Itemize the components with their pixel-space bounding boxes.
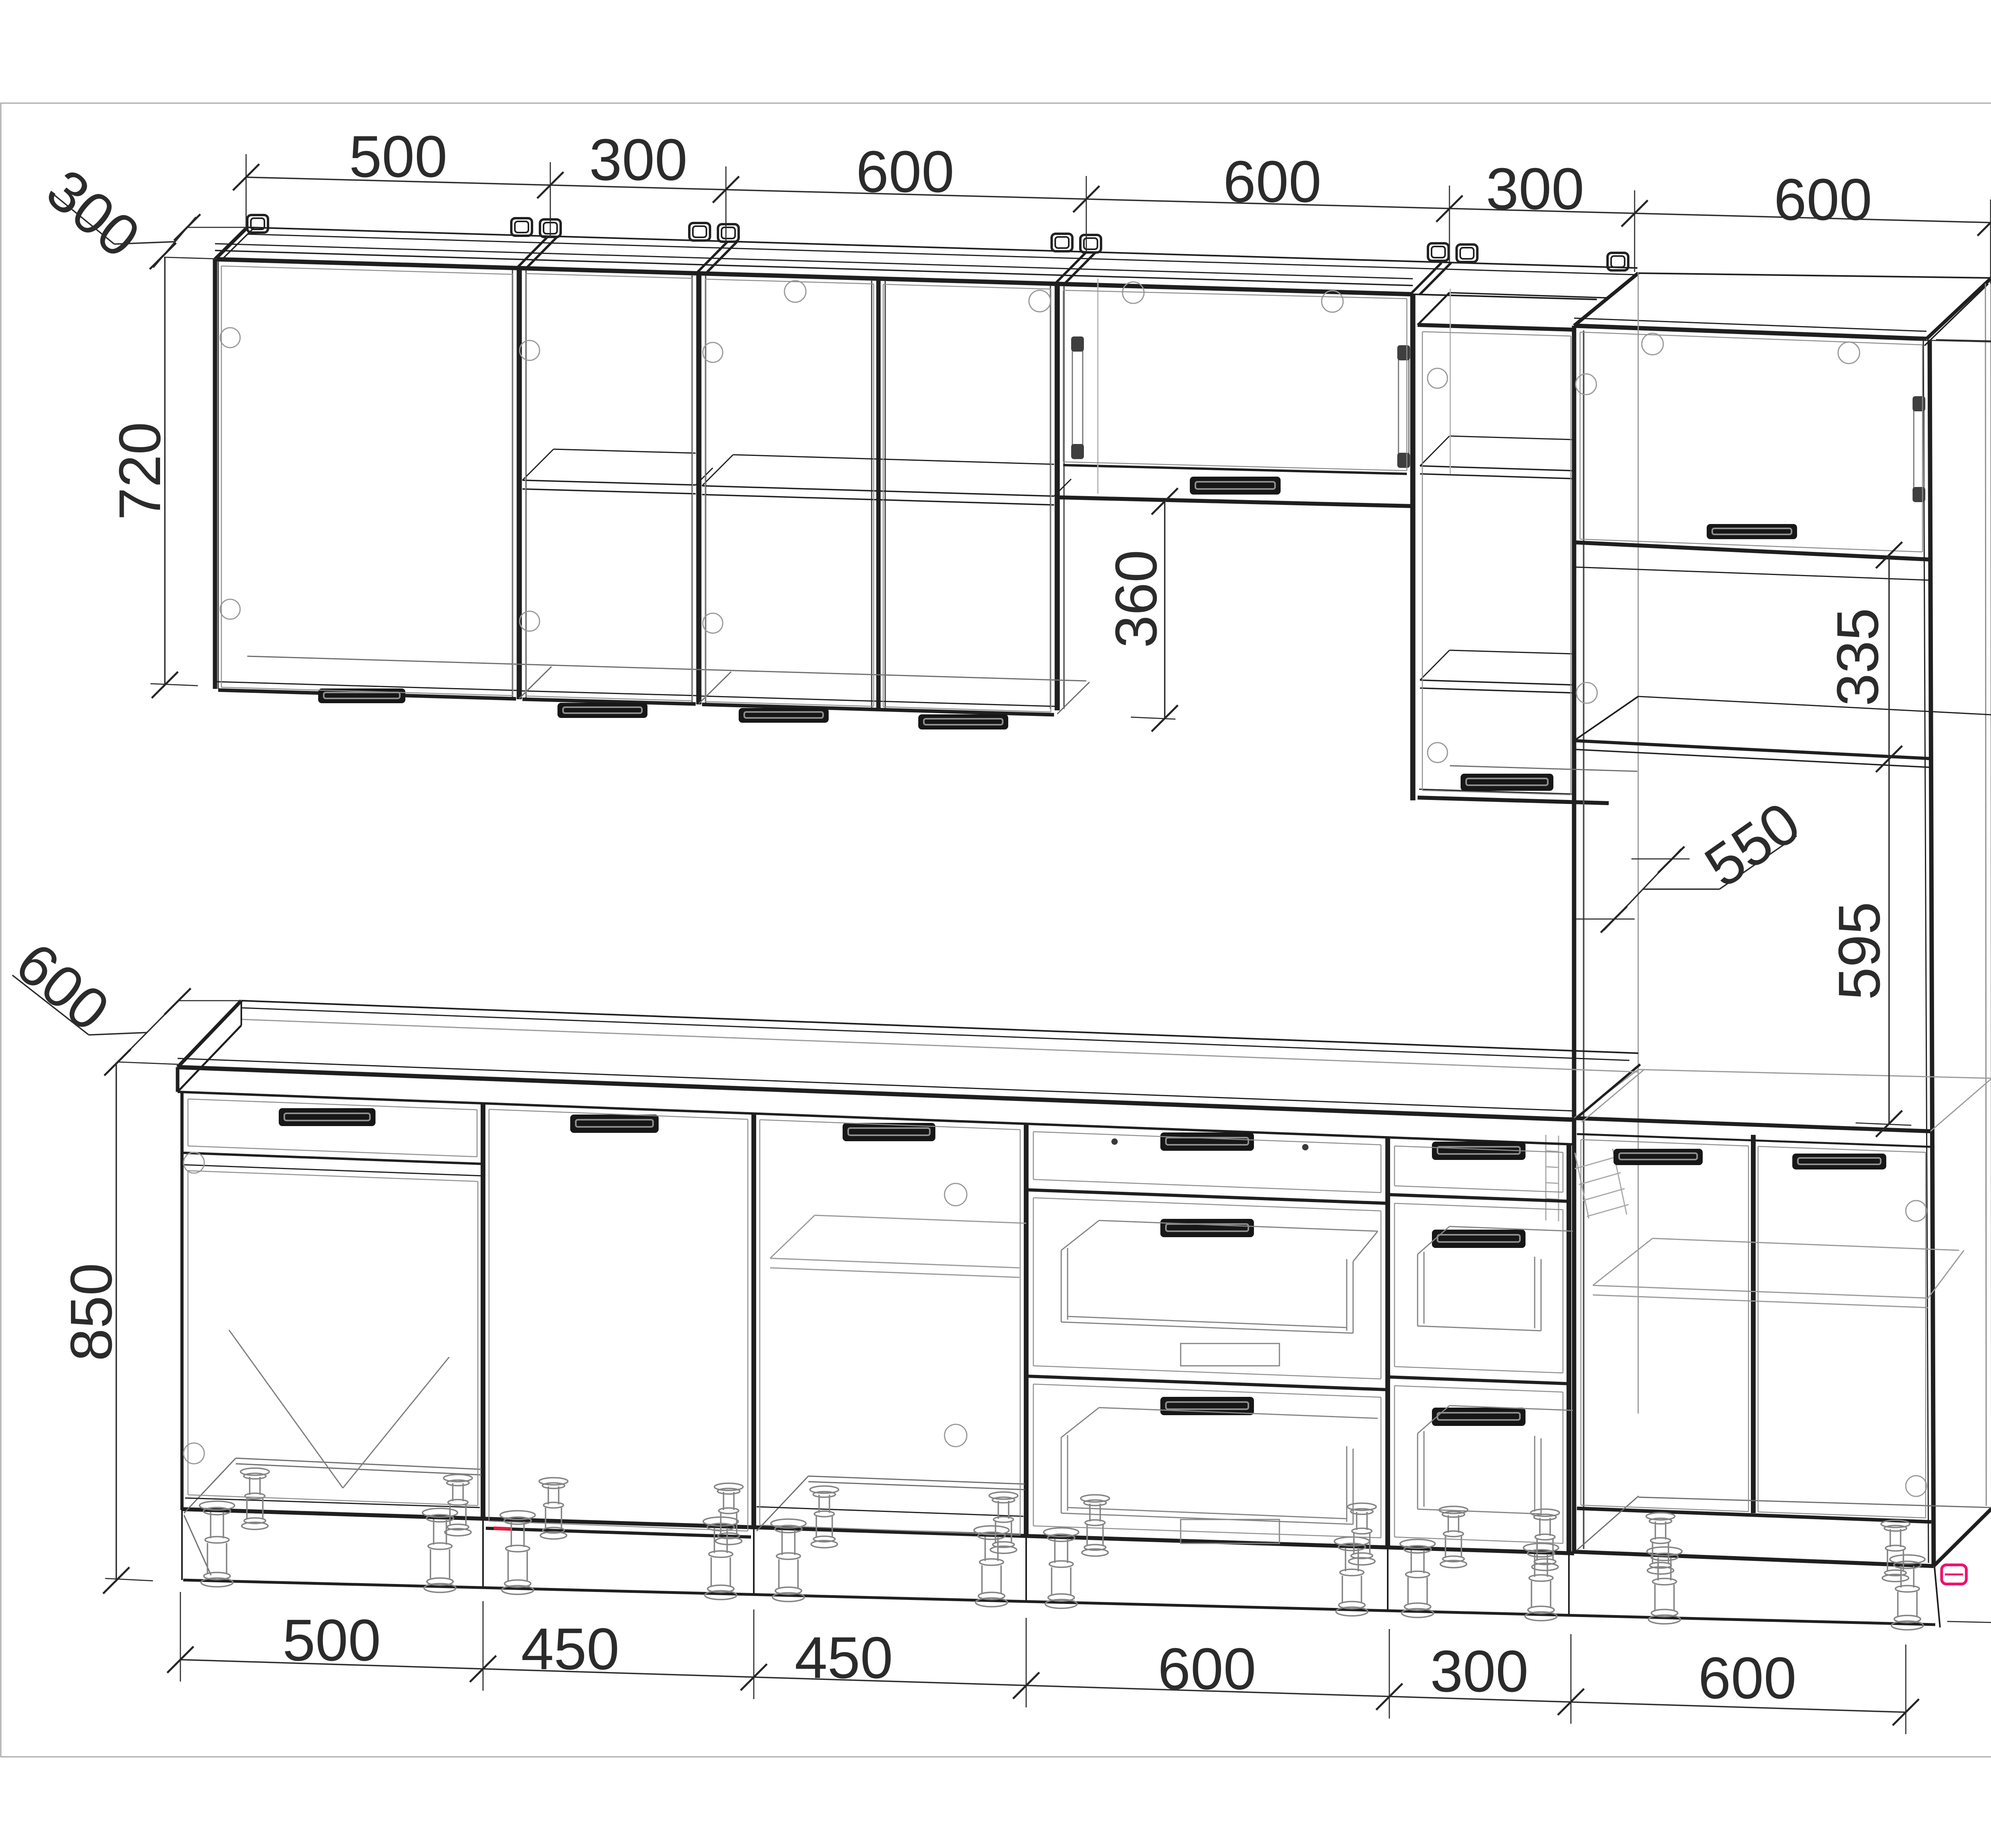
svg-text:720: 720: [107, 422, 173, 520]
svg-text:595: 595: [1827, 902, 1892, 1000]
svg-text:300: 300: [589, 127, 688, 193]
svg-text:450: 450: [521, 1616, 620, 1682]
svg-text:850: 850: [59, 1263, 124, 1361]
svg-text:360: 360: [1103, 550, 1169, 648]
svg-text:450: 450: [795, 1625, 893, 1691]
svg-text:335: 335: [1825, 608, 1891, 706]
svg-text:300: 300: [1430, 1639, 1529, 1704]
svg-text:500: 500: [349, 124, 448, 190]
svg-text:600: 600: [1158, 1636, 1256, 1702]
svg-text:600: 600: [1774, 167, 1872, 233]
svg-text:600: 600: [1698, 1645, 1797, 1711]
svg-text:600: 600: [1223, 149, 1322, 215]
svg-text:600: 600: [856, 139, 954, 205]
svg-text:500: 500: [283, 1607, 381, 1673]
svg-text:300: 300: [1486, 156, 1584, 222]
